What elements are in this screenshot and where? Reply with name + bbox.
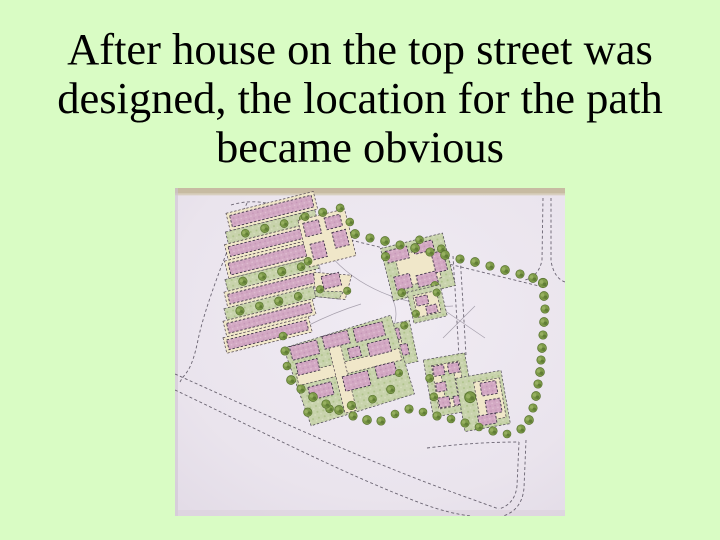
slide-title: After house on the top street was design… (10, 25, 710, 172)
slide-title-line-2: designed, the location for the path (10, 74, 710, 123)
slide-title-line-1: After house on the top street was (10, 25, 710, 74)
site-plan-illustration (175, 188, 565, 516)
site-plan-photo (175, 188, 565, 516)
slide-title-line-3: became obvious (10, 123, 710, 172)
presentation-slide: After house on the top street was design… (0, 0, 720, 540)
